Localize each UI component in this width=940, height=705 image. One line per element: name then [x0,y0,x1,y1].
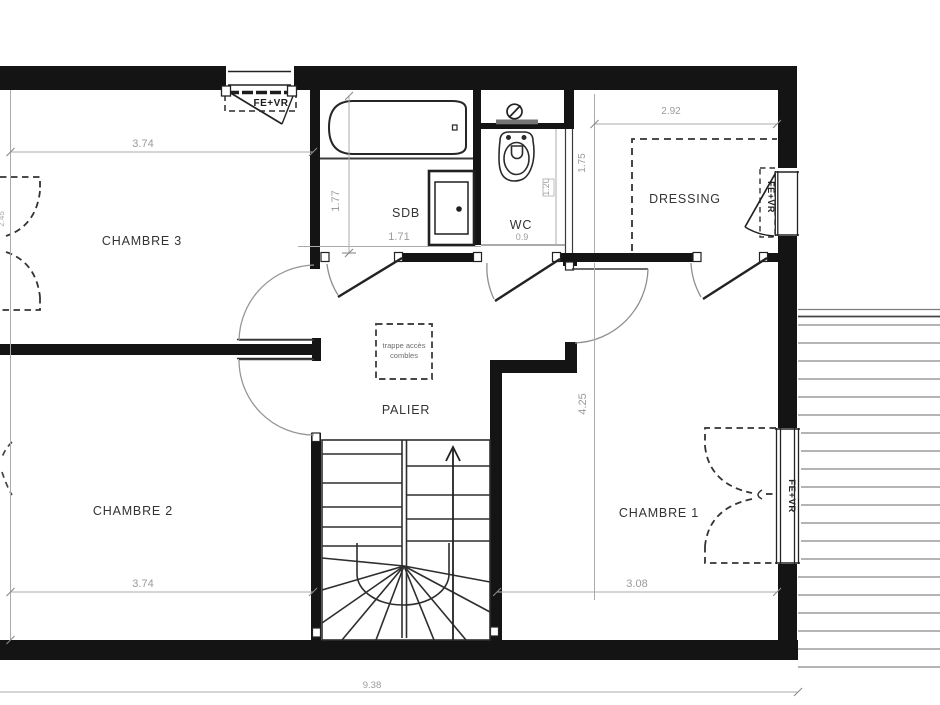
svg-text:SDB: SDB [392,206,420,220]
svg-text:FE+VR: FE+VR [786,479,797,512]
svg-text:2.92: 2.92 [661,106,681,117]
svg-text:FE+VR: FE+VR [766,181,776,213]
svg-text:1.71: 1.71 [388,231,409,243]
svg-text:FE+VR: FE+VR [253,98,288,109]
svg-text:CHAMBRE 3: CHAMBRE 3 [102,234,182,248]
svg-text:0.9: 0.9 [516,232,529,242]
svg-text:CHAMBRE 1: CHAMBRE 1 [619,506,699,520]
svg-text:3.74: 3.74 [132,578,153,590]
svg-text:PALIER: PALIER [382,403,430,417]
svg-text:combles: combles [390,351,418,360]
svg-text:2.45: 2.45 [0,211,6,227]
svg-text:4.25: 4.25 [577,393,589,414]
svg-text:3.08: 3.08 [626,578,647,590]
svg-text:1.77: 1.77 [330,190,342,211]
svg-text:3.74: 3.74 [132,138,153,150]
svg-text:1.75: 1.75 [577,153,588,173]
svg-text:DRESSING: DRESSING [649,192,721,206]
svg-text:CHAMBRE 2: CHAMBRE 2 [93,504,173,518]
svg-text:trappe accès: trappe accès [383,341,426,350]
svg-text:WC: WC [510,218,532,232]
svg-text:9.38: 9.38 [363,680,382,691]
